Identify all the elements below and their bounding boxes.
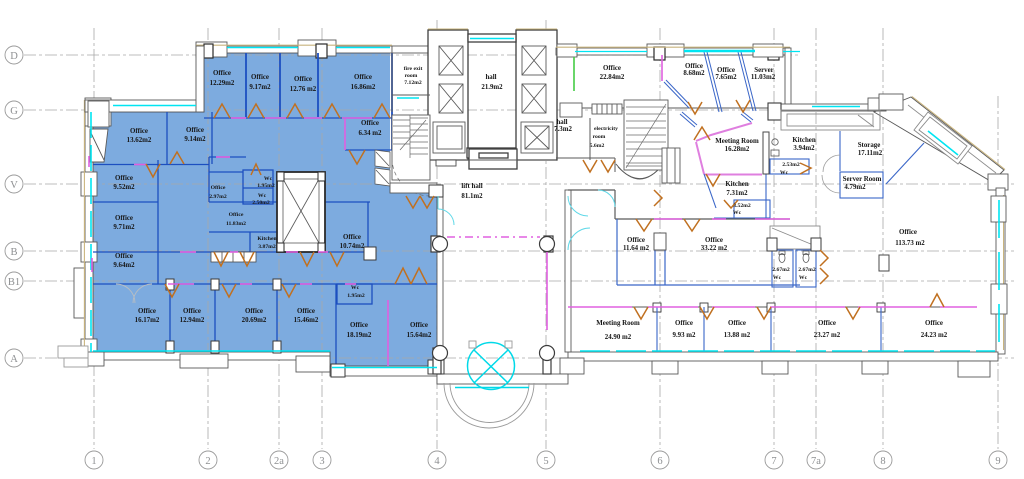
svg-text:Office: Office <box>675 320 693 327</box>
svg-text:Office: Office <box>186 127 204 134</box>
svg-text:9.93 m2: 9.93 m2 <box>673 332 697 339</box>
svg-text:2.50m2: 2.50m2 <box>252 200 270 206</box>
svg-text:10.74m2: 10.74m2 <box>340 243 365 250</box>
svg-text:4.79m2: 4.79m2 <box>844 184 866 191</box>
svg-text:Office: Office <box>229 212 244 218</box>
svg-text:Wc: Wc <box>351 285 360 291</box>
svg-text:9.17m2: 9.17m2 <box>249 84 271 91</box>
svg-text:Server Room: Server Room <box>843 176 882 183</box>
svg-text:113.73 m2: 113.73 m2 <box>895 240 925 247</box>
svg-text:5: 5 <box>543 456 548 467</box>
svg-text:15.64m2: 15.64m2 <box>407 332 432 339</box>
svg-text:24.23 m2: 24.23 m2 <box>921 332 948 339</box>
svg-text:9.71m2: 9.71m2 <box>113 224 135 231</box>
svg-text:16.17m2: 16.17m2 <box>135 317 160 324</box>
svg-text:A: A <box>10 354 18 365</box>
svg-text:Office: Office <box>361 120 379 127</box>
svg-text:Wc: Wc <box>264 176 273 182</box>
svg-text:16.28m2: 16.28m2 <box>725 146 750 153</box>
svg-text:Wc: Wc <box>773 275 782 281</box>
svg-text:3.94m2: 3.94m2 <box>793 145 815 152</box>
svg-text:8.68m2: 8.68m2 <box>683 70 705 77</box>
svg-text:23.27 m2: 23.27 m2 <box>814 332 841 339</box>
svg-text:Office: Office <box>717 67 735 74</box>
svg-text:room: room <box>405 73 418 79</box>
svg-text:11.03m2: 11.03m2 <box>751 74 776 81</box>
svg-text:B: B <box>10 247 17 258</box>
svg-text:hall: hall <box>556 119 567 126</box>
svg-text:15.46m2: 15.46m2 <box>294 317 319 324</box>
svg-text:Office: Office <box>213 70 231 77</box>
svg-text:8: 8 <box>880 456 885 467</box>
svg-text:7.3m2: 7.3m2 <box>554 126 572 133</box>
svg-text:lift hall: lift hall <box>461 183 482 190</box>
svg-text:2a: 2a <box>274 456 284 467</box>
svg-text:2.67m2: 2.67m2 <box>798 267 816 273</box>
svg-text:Server: Server <box>754 67 774 74</box>
svg-text:Office: Office <box>925 320 943 327</box>
svg-text:3: 3 <box>319 456 324 467</box>
svg-text:Office: Office <box>899 229 917 236</box>
svg-text:18.19m2: 18.19m2 <box>347 332 372 339</box>
svg-text:Office: Office <box>130 128 148 135</box>
svg-text:13.62m2: 13.62m2 <box>127 137 152 144</box>
svg-text:Office: Office <box>183 308 201 315</box>
svg-text:16.86m2: 16.86m2 <box>351 84 376 91</box>
svg-text:Office: Office <box>297 308 315 315</box>
svg-text:Office: Office <box>211 185 226 191</box>
svg-text:12.29m2: 12.29m2 <box>210 80 235 87</box>
svg-text:20.69m2: 20.69m2 <box>242 317 267 324</box>
svg-text:7.65m2: 7.65m2 <box>715 74 737 81</box>
svg-text:B1: B1 <box>8 277 20 288</box>
svg-text:Office: Office <box>115 253 133 260</box>
svg-text:fire exit: fire exit <box>404 66 423 72</box>
svg-text:7a: 7a <box>811 456 821 467</box>
svg-text:7.31m2: 7.31m2 <box>726 190 748 197</box>
svg-text:11.83m2: 11.83m2 <box>226 221 246 227</box>
svg-text:Office: Office <box>350 322 368 329</box>
svg-text:81.1m2: 81.1m2 <box>461 193 483 200</box>
svg-text:Office: Office <box>115 175 133 182</box>
svg-text:24.90 m2: 24.90 m2 <box>605 334 632 341</box>
svg-text:Wc: Wc <box>780 170 789 176</box>
svg-text:2.97m2: 2.97m2 <box>209 194 227 200</box>
svg-text:Office: Office <box>818 320 836 327</box>
svg-text:13.88 m2: 13.88 m2 <box>724 332 751 339</box>
svg-text:5.6m2: 5.6m2 <box>590 143 605 149</box>
svg-text:electricity: electricity <box>594 126 618 132</box>
svg-text:Office: Office <box>251 74 269 81</box>
svg-text:6.34 m2: 6.34 m2 <box>359 130 383 137</box>
svg-text:Office: Office <box>705 237 723 244</box>
svg-text:1.95m2: 1.95m2 <box>347 293 365 299</box>
svg-text:V: V <box>10 180 18 191</box>
svg-text:Storage: Storage <box>858 142 881 149</box>
svg-text:11.64 m2: 11.64 m2 <box>623 245 650 252</box>
svg-text:2: 2 <box>205 456 210 467</box>
svg-text:Office: Office <box>343 234 361 241</box>
svg-text:hall: hall <box>485 74 496 81</box>
svg-text:2.53m2: 2.53m2 <box>782 162 800 168</box>
svg-text:Office: Office <box>138 308 156 315</box>
svg-text:1.95m2: 1.95m2 <box>257 183 275 189</box>
svg-text:Office: Office <box>245 308 263 315</box>
svg-text:Kitchen: Kitchen <box>257 236 277 242</box>
svg-text:12.76 m2: 12.76 m2 <box>290 86 317 93</box>
svg-text:9: 9 <box>995 456 1000 467</box>
svg-text:Office: Office <box>728 320 746 327</box>
svg-text:Office: Office <box>603 65 621 72</box>
svg-text:Office: Office <box>294 76 312 83</box>
svg-text:Office: Office <box>685 63 703 70</box>
svg-text:4: 4 <box>434 456 440 467</box>
svg-text:9.64m2: 9.64m2 <box>113 262 135 269</box>
svg-text:9.14m2: 9.14m2 <box>184 136 206 143</box>
svg-text:Office: Office <box>410 322 428 329</box>
svg-text:room: room <box>593 134 606 140</box>
svg-text:Meeting Room: Meeting Room <box>715 138 759 145</box>
svg-text:6: 6 <box>657 456 662 467</box>
svg-text:Wc: Wc <box>733 210 742 216</box>
svg-text:Kitchen: Kitchen <box>792 137 816 144</box>
svg-text:Wc: Wc <box>799 275 808 281</box>
svg-text:12.94m2: 12.94m2 <box>180 317 205 324</box>
svg-text:2.67m2: 2.67m2 <box>772 267 790 273</box>
svg-text:G: G <box>10 106 18 117</box>
svg-text:Kitchen: Kitchen <box>725 181 749 188</box>
svg-text:Meeting Room: Meeting Room <box>596 320 640 327</box>
svg-text:Wc: Wc <box>258 193 267 199</box>
svg-text:7: 7 <box>771 456 776 467</box>
svg-text:D: D <box>10 51 18 62</box>
svg-text:Office: Office <box>354 74 372 81</box>
svg-text:7.12m2: 7.12m2 <box>404 80 422 86</box>
svg-text:1: 1 <box>91 456 96 467</box>
svg-text:3.87m2: 3.87m2 <box>258 244 276 250</box>
svg-text:21.9m2: 21.9m2 <box>481 84 503 91</box>
svg-text:3.52m2: 3.52m2 <box>733 203 751 209</box>
svg-text:9.52m2: 9.52m2 <box>113 184 135 191</box>
svg-text:17.11m2: 17.11m2 <box>858 150 883 157</box>
svg-text:22.84m2: 22.84m2 <box>600 74 625 81</box>
svg-text:Office: Office <box>627 237 645 244</box>
svg-text:Office: Office <box>115 215 133 222</box>
svg-text:33.22 m2: 33.22 m2 <box>701 245 728 252</box>
